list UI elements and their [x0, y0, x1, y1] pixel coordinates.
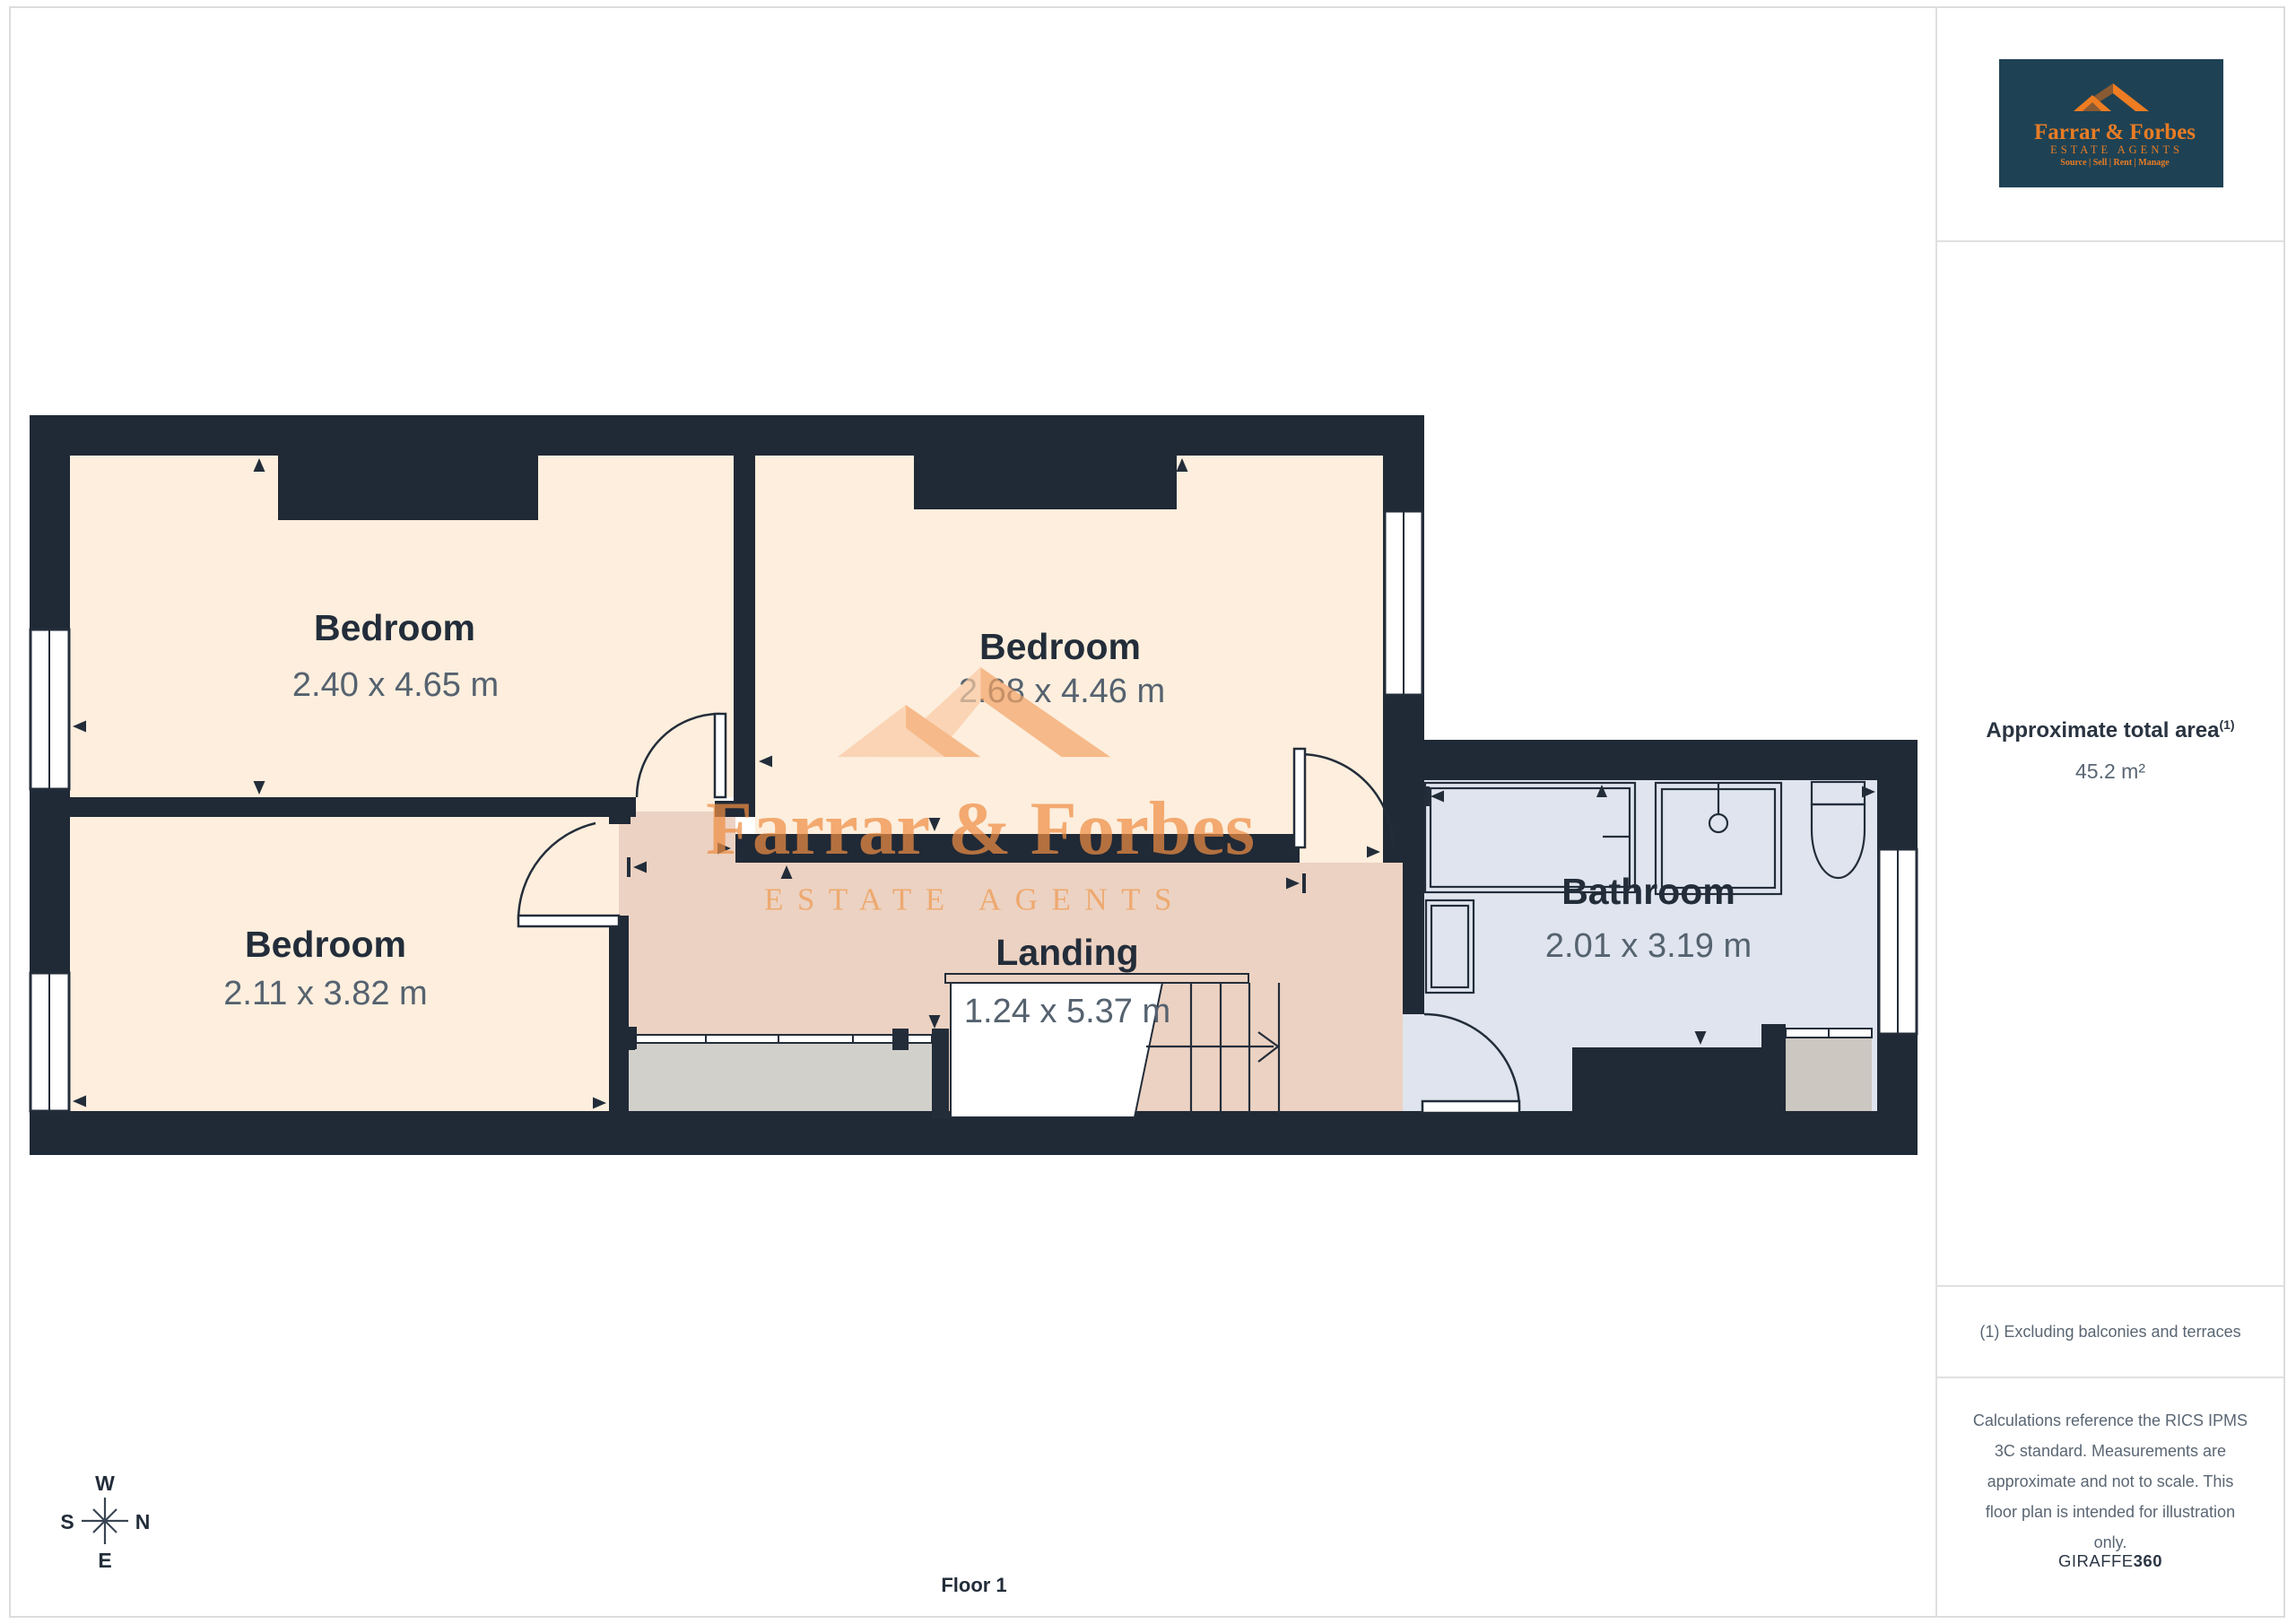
svg-text:Farrar & Forbes: Farrar & Forbes [706, 786, 1255, 871]
svg-text:Bedroom: Bedroom [314, 607, 475, 648]
svg-text:Bedroom: Bedroom [245, 924, 406, 965]
svg-text:W: W [95, 1472, 115, 1495]
svg-text:Bathroom: Bathroom [1561, 871, 1735, 912]
svg-text:Landing: Landing [996, 932, 1138, 973]
svg-text:2.40 x 4.65 m: 2.40 x 4.65 m [292, 666, 499, 704]
svg-text:2.01 x 3.19 m: 2.01 x 3.19 m [1545, 927, 1752, 965]
svg-text:S: S [60, 1510, 74, 1533]
svg-text:N: N [135, 1510, 151, 1533]
svg-text:ESTATE AGENTS: ESTATE AGENTS [764, 882, 1186, 917]
svg-text:2.11 x 3.82 m: 2.11 x 3.82 m [223, 975, 427, 1012]
svg-text:1.24 x 5.37 m: 1.24 x 5.37 m [964, 993, 1170, 1030]
svg-text:Bedroom: Bedroom [979, 626, 1141, 667]
svg-text:E: E [98, 1549, 111, 1572]
